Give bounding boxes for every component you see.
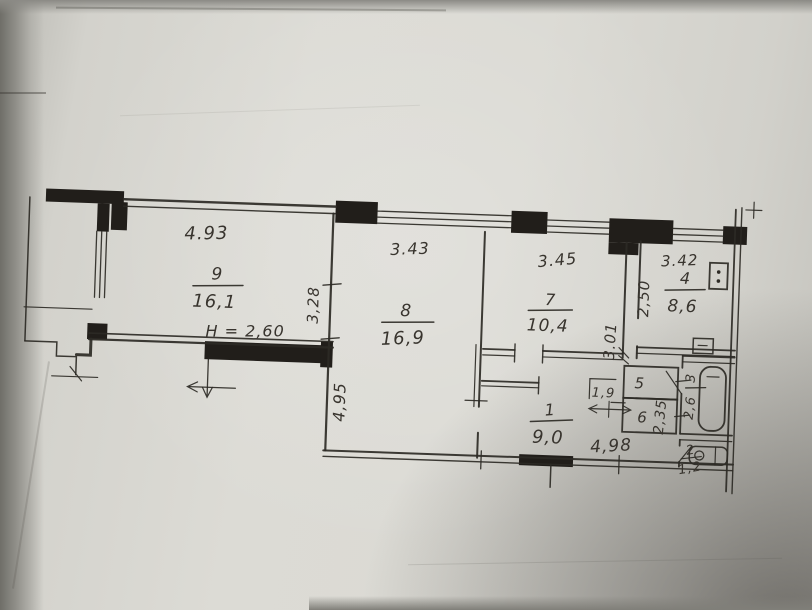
floor-plan-drawing: 4.93 3.43 3.45 3.42 3,28 4,95 3.01 2,50 …	[0, 0, 812, 610]
room7-area: 10,4	[526, 315, 569, 336]
wc-tank-line	[715, 447, 716, 465]
wall-8-hall-inner	[474, 345, 476, 407]
bath-door-leaf	[665, 371, 682, 394]
closet5-outline	[623, 366, 678, 400]
kitchen-bottom-wall	[637, 347, 735, 350]
step-tick	[52, 376, 98, 378]
dim-tick-3	[465, 400, 487, 401]
dim-room8-width: 3.43	[390, 239, 430, 259]
kitchen-window	[673, 228, 723, 242]
wall-block-room8-left	[320, 341, 333, 367]
balcony	[22, 197, 104, 382]
room1-fraction-bar	[530, 419, 572, 423]
wall-block-8-7	[511, 211, 548, 234]
dimension-labels: 4.93 3.43 3.45 3.42 3,28 4,95 3.01 2,50 …	[177, 221, 700, 461]
room4-number: 4	[680, 269, 692, 288]
room8-area: 16,9	[380, 327, 425, 350]
room4-fraction-bar	[665, 288, 705, 291]
bath-wc-wall-2	[680, 440, 732, 442]
entrance-axis-mark	[550, 464, 551, 487]
bath-wc-wall	[680, 434, 732, 436]
wall-7-shaft	[623, 243, 627, 358]
closet-dim-tick	[609, 401, 610, 417]
dim-room7-width: 3.45	[537, 249, 578, 271]
room9-top-wall	[124, 199, 336, 206]
balcony-window	[94, 231, 106, 297]
room9-corner-step	[76, 339, 91, 355]
dim-room8-depth: 4,95	[329, 382, 349, 422]
room7-door-tick-right	[542, 345, 543, 363]
hall-partition-tick	[538, 377, 539, 394]
room3-number: 3	[684, 372, 700, 383]
room7-label: 7 10,4	[526, 289, 573, 337]
hall-partition	[482, 381, 539, 383]
room1-label: 1 9,0	[529, 399, 573, 449]
balcony-door-jamb	[87, 323, 108, 340]
entry-arrow-v	[207, 359, 208, 395]
room2-area: 1,2	[677, 459, 703, 478]
room7-door-tick-left	[514, 344, 515, 362]
dim-bath-depth: 2,35	[651, 398, 671, 435]
photographed-floor-plan-page: 4.93 3.43 3.45 3.42 3,28 4,95 3.01 2,50 …	[0, 0, 812, 610]
dim-hall-depth: 3.01	[600, 322, 621, 361]
height-note: H = 2,60	[206, 322, 285, 341]
vent-dot-2	[717, 279, 721, 283]
hall-partition-2	[482, 386, 539, 388]
room6-number: 6	[637, 408, 648, 426]
room9-area: 16,1	[192, 291, 237, 314]
room1-area: 9,0	[532, 427, 564, 449]
balcony-divider-tick	[24, 307, 92, 309]
dim-hall-width: 4,98	[590, 435, 633, 457]
wall-8-hall-lower	[477, 433, 478, 458]
dim-room9-depth: 3,28	[304, 286, 323, 324]
wall-block-7-4-step	[608, 242, 638, 255]
balcony-bottom-step	[24, 341, 77, 375]
room8-window	[377, 211, 511, 228]
room4-label: 4 8,6	[664, 268, 706, 317]
room7-window	[547, 220, 609, 234]
room1-number: 1	[544, 400, 556, 420]
vent-shaft-icon	[709, 263, 728, 290]
bath-top-wall-2	[683, 362, 735, 364]
dim-closet-width: 1,9	[591, 386, 615, 402]
wall-block-9-8	[335, 201, 378, 224]
room3-area: 2,6	[682, 395, 700, 420]
dim-room9-width: 4.93	[184, 223, 228, 245]
dim-tick-4	[481, 451, 482, 469]
balcony-outer-wall	[25, 197, 30, 341]
room9-top-wall-inner	[124, 206, 336, 213]
room7-bottom-wall-a	[483, 349, 515, 350]
room3-fraction-bar	[686, 387, 706, 389]
dim-room4-width: 3.42	[661, 251, 699, 270]
room5-number: 5	[634, 374, 645, 392]
bathtub-icon	[698, 366, 726, 431]
room2-number: 2	[685, 443, 697, 459]
entry-arrow-h	[189, 387, 235, 389]
dim-room4-depth: 2,50	[634, 279, 653, 317]
corner-reference-mark-2	[754, 202, 755, 218]
room8-number: 8	[400, 301, 413, 321]
left-wall-top-piece	[97, 203, 110, 231]
room8-label: 8 16,9	[380, 300, 435, 351]
room9-number: 9	[211, 264, 224, 284]
dim-tick-5	[619, 456, 620, 474]
room3-label: 3 2,6	[682, 372, 707, 421]
room7-bottom-wall-a2	[483, 355, 515, 356]
plan-group: 4.93 3.43 3.45 3.42 3,28 4,95 3.01 2,50 …	[18, 177, 762, 494]
room9-label: 9 16,1	[192, 264, 244, 314]
room4-area: 8,6	[667, 296, 698, 317]
vent-dot-1	[717, 270, 721, 274]
room7-number: 7	[545, 290, 557, 309]
